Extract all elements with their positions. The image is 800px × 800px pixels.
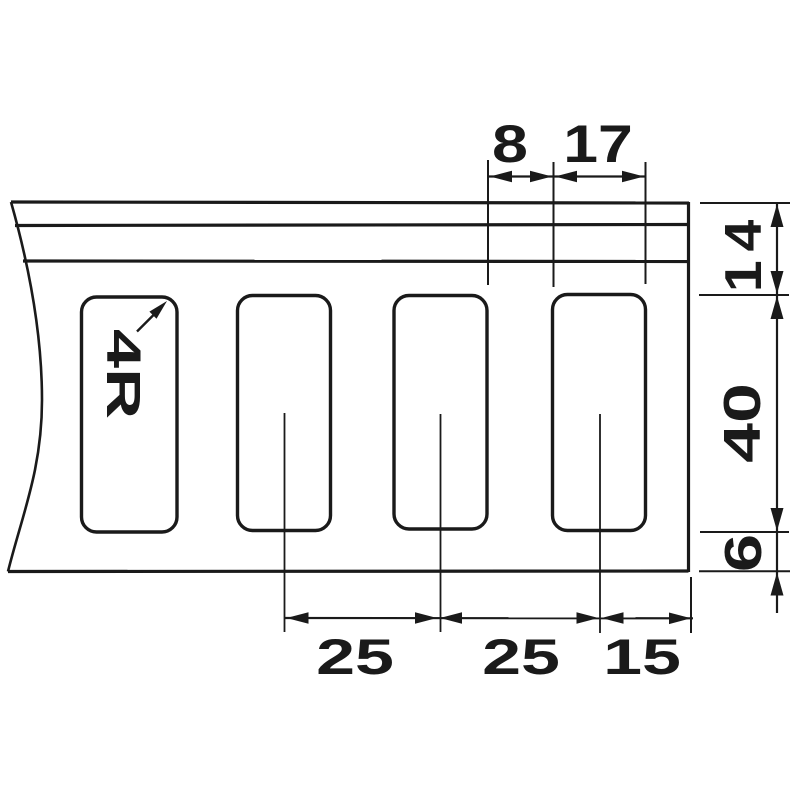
svg-text:15: 15 xyxy=(603,629,681,685)
svg-text:25: 25 xyxy=(482,629,560,685)
svg-text:40: 40 xyxy=(714,383,772,463)
svg-text:6: 6 xyxy=(714,534,772,572)
svg-text:25: 25 xyxy=(316,629,394,685)
svg-text:8: 8 xyxy=(492,114,528,174)
svg-text:4R: 4R xyxy=(97,329,151,419)
svg-text:17: 17 xyxy=(563,115,633,174)
svg-text:14: 14 xyxy=(714,211,772,292)
